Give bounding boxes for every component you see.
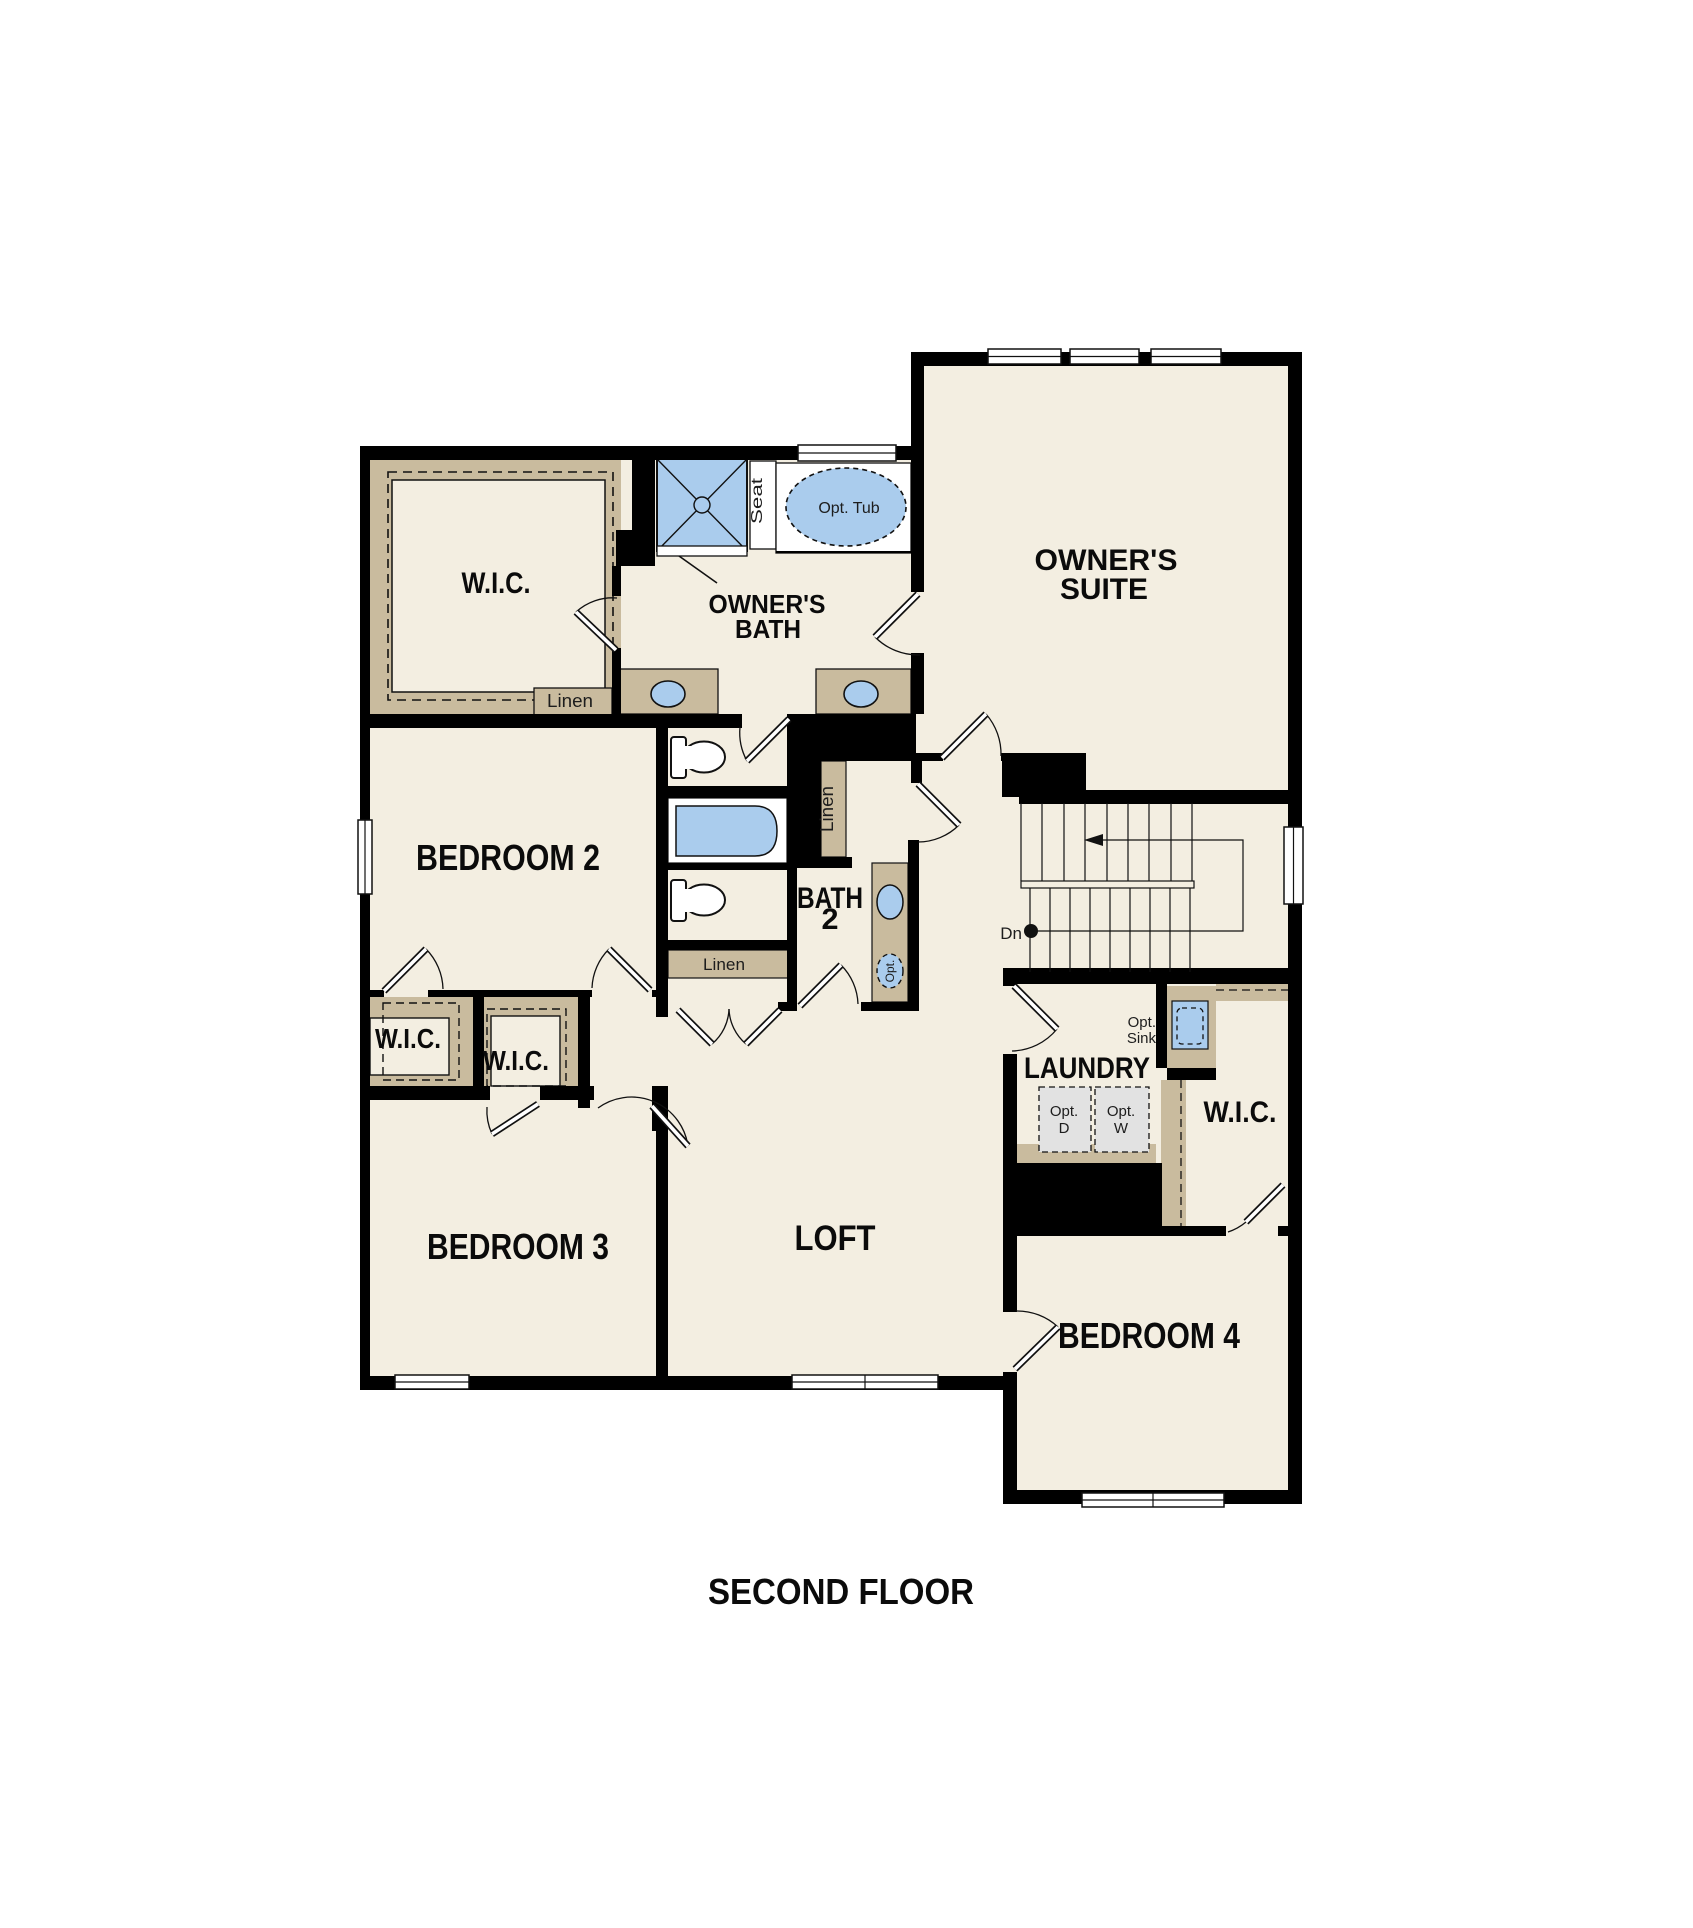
svg-text:Opt.: Opt.: [1050, 1103, 1078, 1120]
svg-text:W.I.C.: W.I.C.: [462, 567, 531, 600]
svg-text:Linen: Linen: [547, 691, 593, 711]
svg-text:Sink: Sink: [1127, 1030, 1157, 1047]
svg-text:BEDROOM 4: BEDROOM 4: [1058, 1315, 1240, 1356]
svg-text:BEDROOM 2: BEDROOM 2: [416, 837, 600, 878]
svg-text:Seat: Seat: [749, 477, 766, 524]
svg-text:LAUNDRY: LAUNDRY: [1024, 1052, 1150, 1085]
svg-text:Dn: Dn: [1000, 924, 1022, 943]
svg-text:W.I.C.: W.I.C.: [375, 1023, 441, 1054]
svg-text:Opt. Tub: Opt. Tub: [818, 500, 879, 517]
svg-text:LOFT: LOFT: [795, 1219, 876, 1258]
svg-text:SUITE: SUITE: [1060, 573, 1148, 606]
svg-text:Opt.: Opt.: [1107, 1103, 1135, 1120]
svg-text:W.I.C.: W.I.C.: [1204, 1096, 1277, 1129]
svg-text:D: D: [1059, 1120, 1070, 1137]
svg-text:SECOND FLOOR: SECOND FLOOR: [708, 1571, 974, 1612]
svg-text:Linen: Linen: [817, 786, 837, 832]
svg-text:W.I.C.: W.I.C.: [483, 1045, 549, 1076]
svg-text:2: 2: [822, 903, 839, 936]
svg-text:Opt.: Opt.: [883, 960, 897, 983]
svg-text:Linen: Linen: [703, 955, 745, 974]
svg-text:Opt.: Opt.: [1128, 1014, 1156, 1031]
svg-text:BEDROOM 3: BEDROOM 3: [427, 1226, 609, 1267]
svg-text:W: W: [1114, 1120, 1129, 1137]
svg-text:BATH: BATH: [735, 614, 801, 644]
